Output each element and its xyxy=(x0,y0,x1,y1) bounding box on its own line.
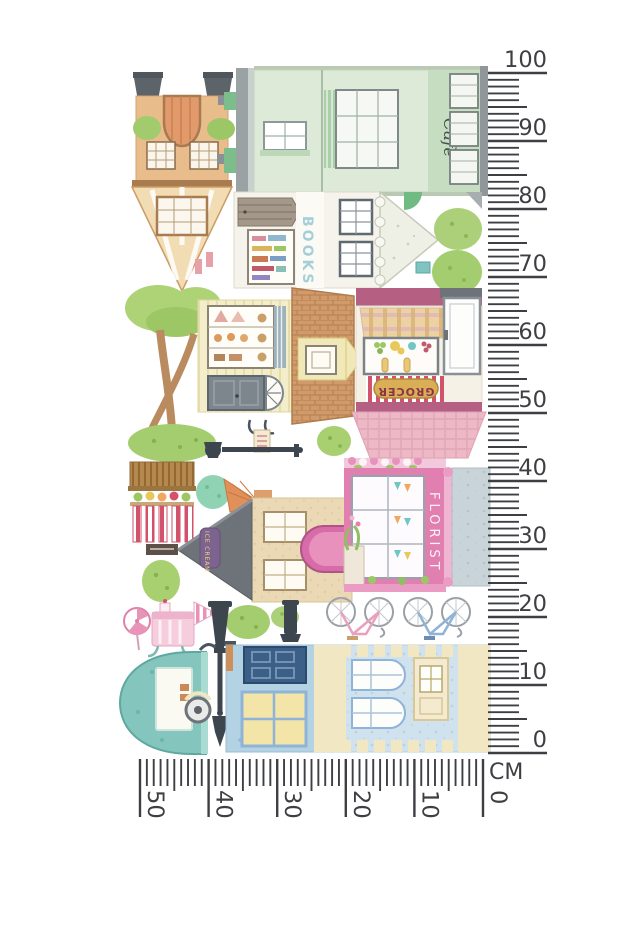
florist-sign-text: FLORIST xyxy=(426,492,441,574)
cream-door xyxy=(414,658,448,720)
bush xyxy=(317,426,351,456)
window xyxy=(190,142,218,169)
awning-corner xyxy=(404,192,422,210)
cm-unit-label: CM xyxy=(489,760,523,785)
florist-shop: FLORIST xyxy=(344,457,491,592)
bush xyxy=(128,424,216,462)
produce-window xyxy=(364,338,438,374)
bush xyxy=(207,118,235,140)
school-building xyxy=(314,645,490,752)
ruler-label: 40 xyxy=(518,455,547,481)
ruler-label: 10 xyxy=(416,790,442,819)
ruler-label: 60 xyxy=(518,319,547,345)
bakery-shop xyxy=(198,288,362,424)
ruler-label: 20 xyxy=(518,591,547,617)
bay-window xyxy=(336,90,398,168)
ruler-label: 100 xyxy=(504,47,547,73)
chimney xyxy=(224,92,238,110)
ruler-label: 80 xyxy=(518,183,547,209)
ruler-label: 0 xyxy=(533,727,547,753)
bush xyxy=(432,250,482,294)
grocer-shop: GROCER xyxy=(352,288,486,458)
window xyxy=(264,560,306,590)
pastry-display-window xyxy=(208,306,274,368)
growth-chart-wall-sticker-sheet: Café BOOKS xyxy=(0,0,621,931)
shop-door xyxy=(208,376,264,410)
bush xyxy=(133,116,161,140)
fruit-stand xyxy=(128,462,196,555)
window xyxy=(450,74,478,108)
gable-window xyxy=(157,197,207,235)
ruler-label: 50 xyxy=(142,790,168,819)
ruler-label: 20 xyxy=(348,790,374,819)
arched-window xyxy=(352,660,405,690)
bicycle xyxy=(404,598,470,640)
ruler-label: 30 xyxy=(279,790,305,819)
tiled-roof xyxy=(352,412,486,458)
window xyxy=(450,112,478,146)
bush xyxy=(142,560,180,602)
yellow-window xyxy=(242,692,306,746)
panel-door xyxy=(244,647,306,683)
glass-door xyxy=(440,288,482,374)
window xyxy=(340,242,372,276)
bush xyxy=(226,605,270,639)
blue-house xyxy=(226,645,314,752)
horizontal-ruler-labels: 50403020100 xyxy=(142,790,511,819)
ruler-label: 70 xyxy=(518,251,547,277)
ruler-label: 30 xyxy=(518,523,547,549)
sticker-sheet-illustration: Café BOOKS xyxy=(0,0,621,931)
ruler-label: 0 xyxy=(485,790,511,804)
window xyxy=(264,512,306,542)
tiny-door xyxy=(416,262,430,273)
bicycle xyxy=(327,598,393,640)
grocer-sign-text: GROCER xyxy=(378,385,435,398)
wooden-sign xyxy=(238,198,300,226)
ruler-label: 40 xyxy=(211,790,237,819)
roof-band xyxy=(236,68,248,194)
cafe-building: Café xyxy=(217,66,488,196)
awning xyxy=(274,306,286,368)
ruler-label: 90 xyxy=(518,115,547,141)
window xyxy=(260,122,310,156)
vertical-ruler xyxy=(488,73,547,753)
arched-window xyxy=(352,698,405,728)
ruler-label: 10 xyxy=(518,659,547,685)
window xyxy=(147,142,175,169)
bookshelf-display xyxy=(248,230,294,284)
awning xyxy=(324,90,336,168)
window xyxy=(450,150,478,184)
ice-cream-shop: ICE CREAM xyxy=(178,490,352,602)
ruler-label: 50 xyxy=(518,387,547,413)
arched-door xyxy=(301,526,350,572)
books-sign-text: BOOKS xyxy=(299,216,315,286)
awning xyxy=(360,308,448,338)
bush xyxy=(434,208,482,250)
arched-door xyxy=(164,96,200,146)
ice-cream-sign-text: ICE CREAM xyxy=(203,531,210,572)
window xyxy=(340,200,372,234)
